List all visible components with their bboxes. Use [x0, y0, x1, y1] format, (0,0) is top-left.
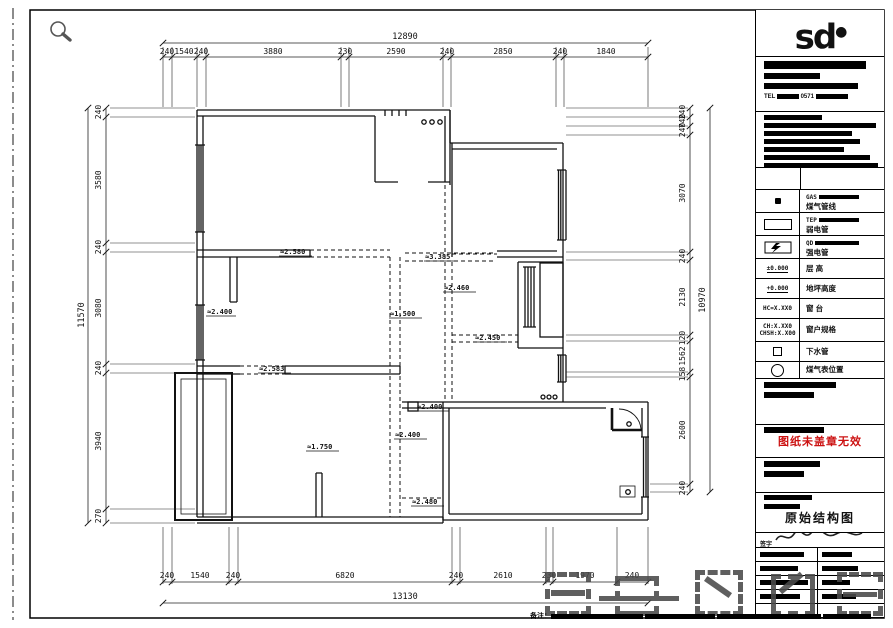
legend: GAS 煤气管线 TEP 弱电管 QD 强电管 ±0.000 层 高	[756, 190, 884, 379]
svg-text:270: 270	[94, 509, 103, 524]
drawing-sheet: ≈2.580 ≈3.385 ≈2.460 ≈1.500 ≈2.400 ≈2.58…	[0, 0, 893, 628]
redacted-bar	[764, 61, 866, 69]
redacted-bar	[764, 131, 852, 136]
legend-header-row	[756, 168, 884, 190]
svg-text:2610: 2610	[493, 571, 512, 580]
company-section: TEL 0571	[756, 57, 884, 112]
plan-label: ≈2.460	[444, 284, 469, 292]
plan-label: ≈2.583	[259, 365, 284, 373]
redacted-bar	[764, 147, 844, 152]
redacted-bar	[764, 115, 822, 120]
plan-labels: ≈2.580 ≈3.385 ≈2.460 ≈1.500 ≈2.400 ≈2.58…	[206, 248, 507, 506]
redacted-bar	[764, 73, 820, 79]
logo-section: sd●	[756, 10, 884, 57]
svg-text:240: 240	[160, 571, 175, 580]
plan-label: ≈2.580	[280, 248, 305, 256]
redacted-bar	[764, 123, 876, 128]
conduit-icon	[764, 219, 792, 230]
redacted-bar	[764, 382, 836, 388]
drawing-title-box: 原始结构图	[756, 493, 884, 533]
gas-point-icon	[775, 198, 781, 204]
svg-text:1562: 1562	[678, 346, 687, 365]
plan-label: ≈2.480	[412, 498, 437, 506]
svg-text:240: 240	[678, 249, 687, 264]
plan-label: ≈2.450	[475, 334, 500, 342]
svg-text:1840: 1840	[596, 47, 615, 56]
svg-text:1540: 1540	[174, 47, 193, 56]
elevation-mark-icon: +0.000	[767, 285, 789, 293]
company-logo: sd●	[756, 10, 884, 57]
dim-right-overall: 10970	[698, 287, 708, 313]
redacted-bar	[764, 495, 812, 500]
plan-label: ≈2.400	[417, 403, 442, 411]
dim-left-overall: 11570	[77, 302, 87, 328]
magnifier-icon[interactable]	[48, 19, 74, 45]
svg-text:3940: 3940	[94, 431, 103, 450]
legend-row-gas-meter: 煤气表位置	[756, 362, 884, 379]
svg-text:2600: 2600	[678, 420, 687, 439]
signature	[774, 533, 864, 544]
watermark-glyph	[695, 570, 743, 616]
title-block: sd● TEL 0571	[755, 10, 884, 618]
legend-row-storey-height: ±0.000 层 高	[756, 259, 884, 279]
svg-text:230: 230	[338, 47, 353, 56]
svg-text:158: 158	[678, 367, 687, 382]
dimension-text-left: 240 3580 240 3080 240 3940 270 11570	[77, 105, 103, 524]
no-seal-invalid-stamp: 图纸未盖章无效	[756, 433, 884, 449]
svg-text:240: 240	[678, 481, 687, 496]
stamp-box: 图纸未盖章无效	[756, 425, 884, 458]
svg-text:2850: 2850	[493, 47, 512, 56]
dashed-openings	[240, 185, 518, 517]
power-conduit-icon	[764, 241, 792, 254]
magnifier-glyph	[48, 19, 74, 45]
svg-text:240: 240	[226, 571, 241, 580]
svg-text:120: 120	[678, 331, 687, 346]
legend-row-tep: TEP 弱电管	[756, 213, 884, 236]
redacted-bar	[764, 139, 860, 144]
legend-row-drain: 下水管	[756, 342, 884, 362]
svg-text:3070: 3070	[678, 183, 687, 202]
svg-text:3080: 3080	[94, 298, 103, 317]
redacted-bar	[764, 471, 804, 477]
dimension-text-top: 12890 240 1540 240 3880 230 2590 240 285…	[160, 32, 616, 56]
info-paragraph	[756, 112, 884, 168]
redacted-bar	[760, 552, 804, 557]
svg-text:3880: 3880	[263, 47, 282, 56]
svg-text:240: 240	[553, 47, 568, 56]
level-mark-icon: ±0.000	[767, 265, 789, 273]
plan-label: ≈2.400	[207, 308, 232, 316]
svg-text:240: 240	[449, 571, 464, 580]
redacted-bar	[764, 83, 858, 89]
redacted-bar	[822, 552, 852, 557]
plan-label: ≈3.385	[425, 253, 450, 261]
dim-top-overall: 12890	[392, 32, 418, 42]
bottom-note: 备注：	[530, 611, 886, 621]
legend-row-sill: HC=X.XX0 窗 台	[756, 299, 884, 319]
svg-text:240: 240	[160, 47, 175, 56]
svg-text:240: 240	[94, 240, 103, 255]
drawing-title: 原始结构图	[756, 509, 884, 526]
svg-text:3580: 3580	[94, 170, 103, 189]
svg-text:6820: 6820	[335, 571, 354, 580]
redacted-bar	[764, 155, 870, 160]
dim-bottom-overall: 13130	[392, 592, 418, 602]
dimension-lines	[85, 40, 713, 606]
plan-label: ≈1.750	[307, 443, 332, 451]
redacted-bar	[764, 392, 814, 398]
redacted-bar	[764, 461, 820, 467]
drain-pipe-icon	[773, 347, 782, 356]
notes-box	[756, 379, 884, 425]
svg-text:240: 240	[194, 47, 209, 56]
legend-row-window-size: CH:X.XX0 CHSH:X.X00 窗户规格	[756, 319, 884, 342]
project-box	[756, 458, 884, 493]
plan-label: ≈2.400	[395, 431, 420, 439]
legend-row-qd: QD 强电管	[756, 236, 884, 259]
svg-text:1540: 1540	[190, 571, 209, 580]
svg-text:2130: 2130	[678, 287, 687, 306]
svg-text:240: 240	[94, 105, 103, 120]
sill-code: HC=X.XX0	[763, 305, 792, 312]
svg-text:240: 240	[94, 361, 103, 376]
svg-text:2590: 2590	[386, 47, 405, 56]
dimension-text-right: 240 740 240 3070 240 2130 120 1562 158 2…	[678, 105, 708, 496]
phone-row: TEL 0571	[764, 94, 884, 100]
legend-row-gas: GAS 煤气管线	[756, 190, 884, 213]
plan-label: ≈1.500	[390, 310, 415, 318]
svg-text:240: 240	[440, 47, 455, 56]
note-prefix: 备注：	[530, 613, 551, 620]
gas-meter-icon	[771, 364, 784, 377]
svg-text:240: 240	[678, 123, 687, 138]
signature-row: 签字	[756, 533, 884, 548]
legend-row-floor-level: +0.000 地坪高度	[756, 279, 884, 299]
